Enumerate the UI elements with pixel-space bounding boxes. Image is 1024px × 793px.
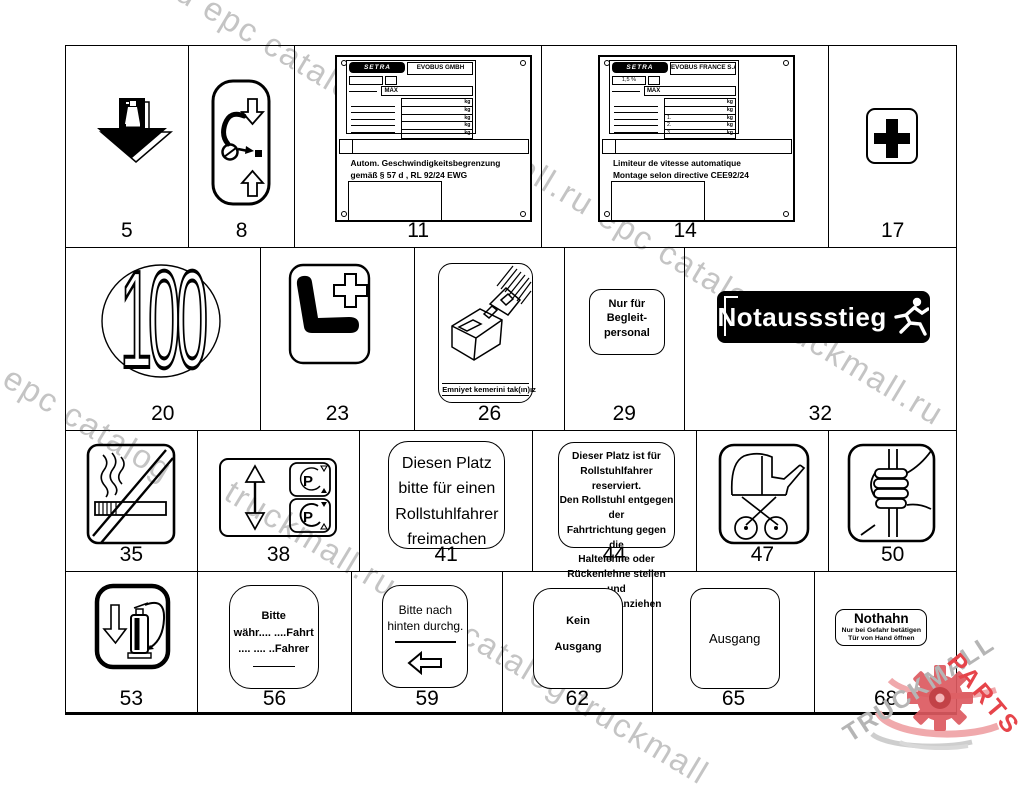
part-number: 53 <box>66 687 197 711</box>
part-cell-29[interactable]: Nur für Begleit- personal 29 <box>565 248 685 430</box>
type-plate-french: SETRA EVOBUS FRANCE S.A.S 1,5 % MAX <box>598 55 795 222</box>
plate-caption: Autom. Geschwindigkeitsbegrenzung gemäß … <box>350 158 500 182</box>
part-number: 26 <box>415 402 564 426</box>
part-cell-8[interactable]: 8 <box>189 46 296 247</box>
plate-data-block: SETRA EVOBUS FRANCE S.A.S 1,5 % MAX <box>609 60 739 134</box>
epc-catalog-page: { "watermark": { "lines": [ "truckmall.r… <box>0 0 1024 750</box>
plate-maker: EVOBUS GMBH <box>407 62 473 75</box>
plate-slot-bar <box>602 139 792 154</box>
exit-sign: Ausgang <box>690 588 780 689</box>
part-cell-20[interactable]: 100 20 <box>66 248 261 430</box>
no-exit-sign: Kein Ausgang <box>533 588 623 689</box>
seat-belt-sign: Emniyet kemerini tak(ın)ız <box>438 263 533 403</box>
plate-ruled-lines <box>349 98 401 139</box>
grid-row-4: 53 Bitte währ.... ....Fahrt .... .... ..… <box>66 572 956 715</box>
screw-hole-icon <box>604 211 610 217</box>
part-number: 59 <box>352 687 502 711</box>
seat-belt-caption: Emniyet kemerini tak(ın)ız <box>442 383 529 396</box>
part-number: 44 <box>533 543 696 567</box>
grid-row-1: 5 8 <box>66 46 956 248</box>
plate-line <box>349 91 377 92</box>
part-cell-62[interactable]: Kein Ausgang 62 <box>503 572 653 715</box>
fire-extinguisher-below-icon <box>94 583 171 670</box>
part-cell-5[interactable]: 5 <box>66 46 189 247</box>
part-cell-26[interactable]: Emniyet kemerini tak(ın)ız 26 <box>415 248 565 430</box>
part-number: 23 <box>261 402 415 426</box>
part-cell-56[interactable]: Bitte währ.... ....Fahrt .... .... ..Fah… <box>198 572 353 715</box>
plate-ruled-lines <box>612 98 664 139</box>
screw-hole-icon <box>341 211 347 217</box>
part-number: 29 <box>565 402 684 426</box>
extinguisher-down-arrow-icon <box>93 96 177 172</box>
part-cell-17[interactable]: 17 <box>829 46 956 247</box>
blank-line <box>253 666 295 667</box>
type-plate-german: SETRA EVOBUS GMBH MAX <box>335 55 532 222</box>
wheelchair-space-reserved-sign: Dieser Platz ist für Rollstuhlfahrer res… <box>558 442 675 548</box>
plate-sub-cell: 1,5 % <box>612 76 646 85</box>
white-frame-corner <box>724 296 738 336</box>
part-number: 20 <box>66 402 260 426</box>
part-cell-32[interactable]: Notaussstieg 32 <box>685 248 956 430</box>
no-smoking-icon <box>86 443 176 545</box>
door-release-valve-icon <box>211 79 271 206</box>
part-cell-44[interactable]: Dieser Platz ist für Rollstuhlfahrer res… <box>533 431 697 571</box>
hold-handrail-icon <box>847 443 936 543</box>
grid-row-3: 35 P P <box>66 431 956 572</box>
part-cell-50[interactable]: 50 <box>829 431 956 571</box>
part-number: 62 <box>503 687 652 711</box>
setra-logo: SETRA <box>612 62 668 73</box>
move-to-rear-sign: Bitte nach hinten durchg. <box>382 585 468 688</box>
plate-weight-table: kg kg kg kg kg <box>401 98 473 139</box>
part-number: 35 <box>66 543 197 567</box>
part-cell-11[interactable]: SETRA EVOBUS GMBH MAX <box>295 46 541 247</box>
driver-notice-sign: Bitte währ.... ....Fahrt .... .... ..Fah… <box>229 585 319 689</box>
plate-data-block: SETRA EVOBUS GMBH MAX <box>346 60 476 134</box>
svg-text:100: 100 <box>120 263 206 383</box>
setra-logo: SETRA <box>349 62 405 73</box>
part-cell-47[interactable]: 47 <box>697 431 830 571</box>
pram-icon <box>718 443 810 545</box>
part-number: 50 <box>829 543 956 567</box>
emergency-exit-sign: Notaussstieg <box>717 291 930 343</box>
divider-line <box>395 641 455 643</box>
grid-row-2: 100 20 23 <box>66 248 956 431</box>
plate-line <box>612 91 640 92</box>
svg-text:P: P <box>303 473 313 490</box>
part-number: 56 <box>198 687 352 711</box>
screw-hole-icon <box>783 60 789 66</box>
plate-maker: EVOBUS FRANCE S.A.S <box>670 62 736 75</box>
running-man-icon <box>893 296 929 338</box>
part-number: 5 <box>66 219 188 243</box>
part-number: 41 <box>360 543 532 567</box>
plate-max-field: MAX <box>644 86 736 96</box>
plate-slot-bar <box>339 139 529 154</box>
part-number: 17 <box>829 219 956 243</box>
part-number: 14 <box>542 219 828 243</box>
part-number: 65 <box>653 687 815 711</box>
part-cell-23[interactable]: 23 <box>261 248 416 430</box>
part-number: 47 <box>697 543 829 567</box>
screw-hole-icon <box>520 211 526 217</box>
part-cell-14[interactable]: SETRA EVOBUS FRANCE S.A.S 1,5 % MAX <box>542 46 829 247</box>
attendants-only-sign: Nur für Begleit- personal <box>589 289 665 355</box>
emergency-exit-label: Notaussstieg <box>717 302 886 333</box>
priority-seat-icon <box>288 263 371 365</box>
part-cell-38[interactable]: P P 38 <box>198 431 361 571</box>
plate-caption: Limiteur de vitesse automatique Montage … <box>613 158 749 182</box>
screw-hole-icon <box>520 60 526 66</box>
part-cell-35[interactable]: 35 <box>66 431 198 571</box>
screw-hole-icon <box>783 211 789 217</box>
part-cell-59[interactable]: Bitte nach hinten durchg. 59 <box>352 572 503 715</box>
part-cell-41[interactable]: Diesen Platz bitte für einen Rollstuhlfa… <box>360 431 533 571</box>
plate-sub-cell <box>385 76 397 85</box>
part-cell-65[interactable]: Ausgang 65 <box>653 572 816 715</box>
first-aid-cross-icon <box>865 107 919 165</box>
plate-empty-field <box>611 181 705 221</box>
plate-empty-field <box>348 181 442 221</box>
part-number: 32 <box>685 402 956 426</box>
part-number: 8 <box>189 219 295 243</box>
part-cell-53[interactable]: 53 <box>66 572 198 715</box>
svg-text:P: P <box>303 509 313 526</box>
speed-limit-100-icon: 100 <box>99 263 225 383</box>
left-arrow-icon <box>407 651 443 675</box>
part-number: 38 <box>198 543 360 567</box>
part-number: 11 <box>295 219 540 243</box>
plate-max-field: MAX <box>381 86 473 96</box>
wheelchair-space-request-sign: Diesen Platz bitte für einen Rollstuhlfa… <box>388 441 505 549</box>
plate-sub-cell <box>648 76 660 85</box>
parts-diagram-sheet: 5 8 <box>65 45 957 715</box>
parking-brake-controls-icon: P P <box>218 457 338 538</box>
plate-sub-cell <box>349 76 383 85</box>
plate-weight-table: kg kg 1.kg 2.kg 3.kg <box>664 98 736 139</box>
seat-belt-buckle-icon <box>439 264 532 372</box>
emergency-cock-sign: Nothahn Nur bei Gefahr betätigen Tür von… <box>835 609 927 646</box>
